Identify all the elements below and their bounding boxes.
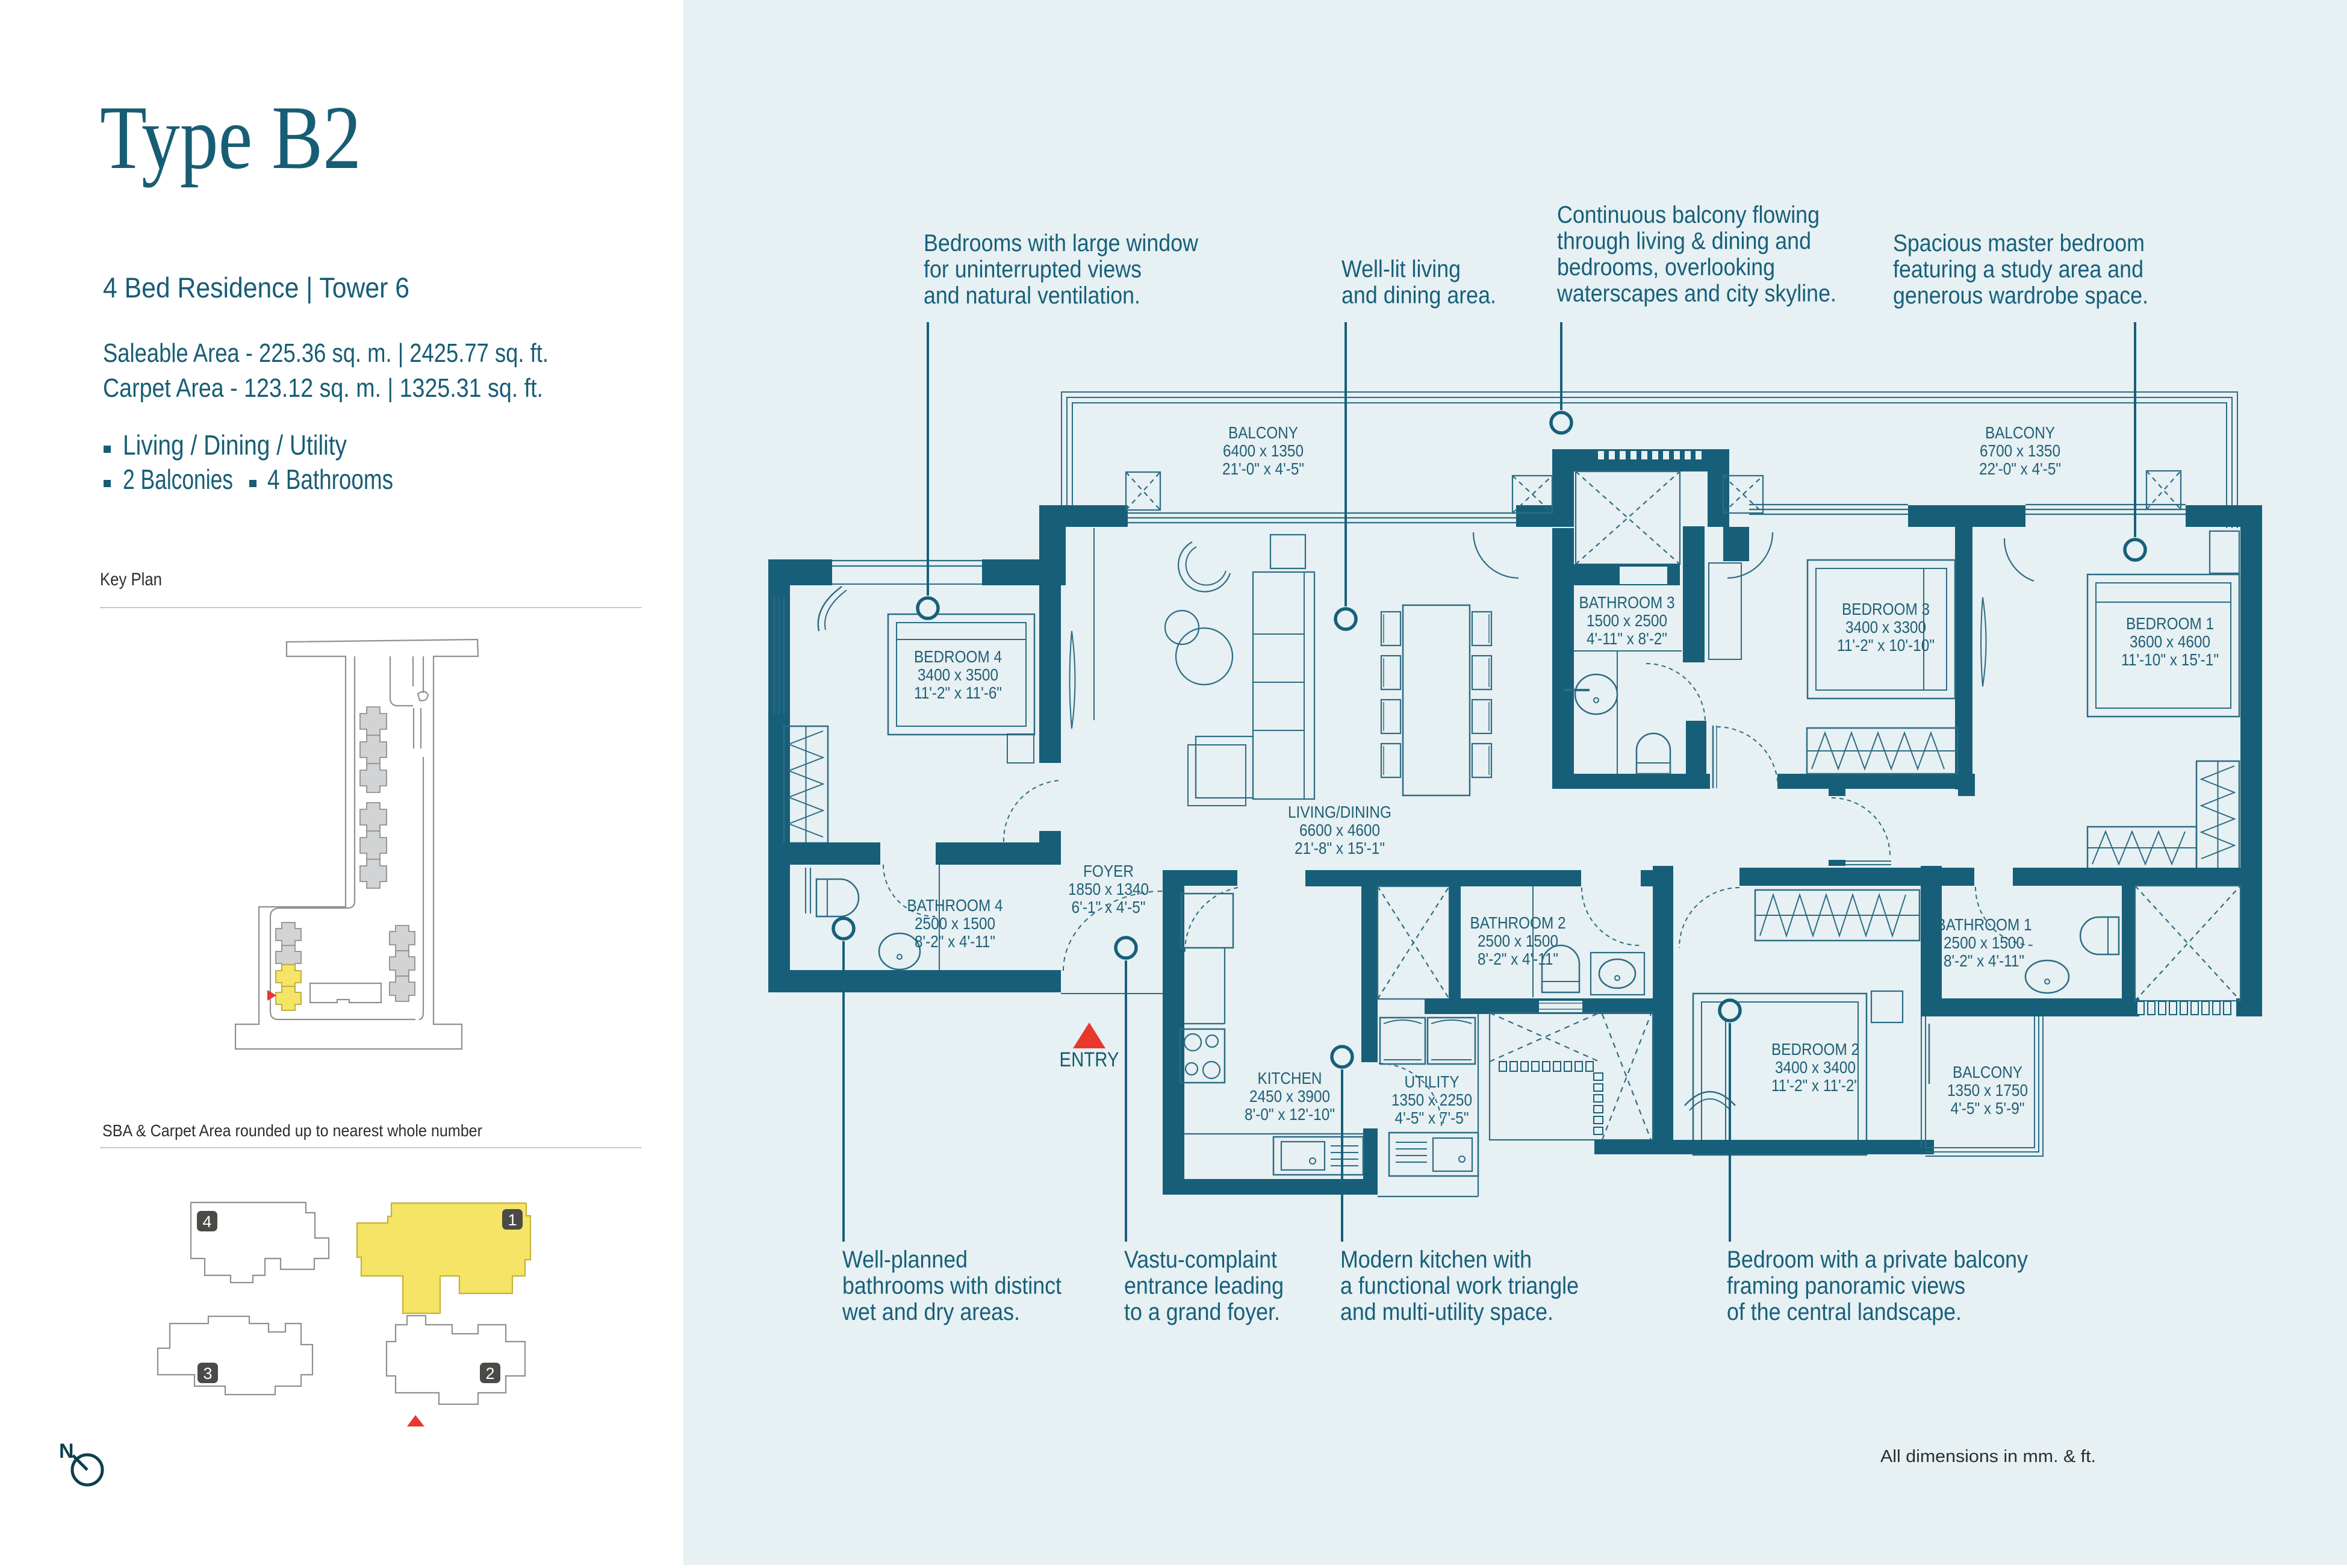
svg-text:21'-8" x 15'-1": 21'-8" x 15'-1" xyxy=(1295,839,1385,857)
svg-text:wet and dry areas.: wet and dry areas. xyxy=(842,1299,1020,1325)
svg-text:4 Bathrooms: 4 Bathrooms xyxy=(267,464,393,495)
svg-text:for uninterrupted views: for uninterrupted views xyxy=(924,257,1142,283)
svg-text:BALCONY: BALCONY xyxy=(1228,423,1298,442)
svg-text:Bedroom with a private balcony: Bedroom with a private balcony xyxy=(1727,1246,2028,1273)
svg-text:Carpet Area - 123.12 sq. m: Carpet Area - 123.12 sq. m. | 1325.31 sq… xyxy=(103,373,543,403)
svg-text:BEDROOM 1: BEDROOM 1 xyxy=(2126,614,2214,633)
svg-text:and natural ventilation.: and natural ventilation. xyxy=(924,282,1140,309)
svg-text:and multi-utility space.: and multi-utility space. xyxy=(1340,1299,1553,1325)
svg-text:2: 2 xyxy=(485,1364,494,1383)
svg-text:11'-10" x 15'-1": 11'-10" x 15'-1" xyxy=(2121,650,2219,669)
svg-text:11'-2" x 11'-6": 11'-2" x 11'-6" xyxy=(914,683,1002,702)
svg-text:BATHROOM 2: BATHROOM 2 xyxy=(1470,913,1566,932)
svg-text:3: 3 xyxy=(203,1364,212,1383)
svg-text:Well-planned: Well-planned xyxy=(842,1246,968,1273)
svg-text:1850 x 1340: 1850 x 1340 xyxy=(1068,880,1149,898)
svg-text:2500 x 1500: 2500 x 1500 xyxy=(1478,932,1558,950)
svg-text:1350 x 1750: 1350 x 1750 xyxy=(1947,1081,2028,1100)
svg-text:8'-2" x 4'-11": 8'-2" x 4'-11" xyxy=(915,932,995,951)
svg-text:Bedrooms with large window: Bedrooms with large window xyxy=(924,230,1198,257)
svg-text:KITCHEN: KITCHEN xyxy=(1258,1069,1322,1087)
svg-text:BATHROOM 1: BATHROOM 1 xyxy=(1936,915,2032,934)
svg-text:Key Plan: Key Plan xyxy=(100,570,162,590)
svg-text:waterscapes and city skyline.: waterscapes and city skyline. xyxy=(1556,281,1836,307)
svg-text:Continuous balcony flowing: Continuous balcony flowing xyxy=(1557,202,1820,228)
svg-text:3400 x 3400: 3400 x 3400 xyxy=(1775,1058,1856,1077)
svg-text:a functional work triangle: a functional work triangle xyxy=(1340,1273,1579,1299)
svg-text:BALCONY: BALCONY xyxy=(1953,1063,2022,1081)
svg-text:bedrooms, overlooking: bedrooms, overlooking xyxy=(1557,254,1775,281)
svg-text:22'-0" x 4'-5": 22'-0" x 4'-5" xyxy=(1979,459,2061,478)
svg-text:2 Balconies: 2 Balconies xyxy=(123,464,233,495)
svg-text:4'-5" x 7'-5": 4'-5" x 7'-5" xyxy=(1395,1109,1469,1127)
svg-text:Well-lit living: Well-lit living xyxy=(1341,256,1461,282)
svg-text:All dimensions in mm. & ft.: All dimensions in mm. & ft. xyxy=(1880,1447,2096,1466)
svg-text:4: 4 xyxy=(202,1213,211,1231)
svg-text:BATHROOM 4: BATHROOM 4 xyxy=(907,896,1003,915)
svg-text:Modern kitchen with: Modern kitchen with xyxy=(1340,1246,1532,1273)
svg-text:3400 x 3500: 3400 x 3500 xyxy=(918,665,998,684)
svg-text:21'-0" x 4'-5": 21'-0" x 4'-5" xyxy=(1222,459,1304,478)
svg-text:framing panoramic views: framing panoramic views xyxy=(1727,1273,1965,1299)
svg-text:BEDROOM 3: BEDROOM 3 xyxy=(1842,600,1930,618)
svg-text:8'-2" x 4'-11": 8'-2" x 4'-11" xyxy=(1944,951,2024,970)
svg-text:2500 x 1500: 2500 x 1500 xyxy=(915,914,995,933)
svg-text:BALCONY: BALCONY xyxy=(1985,423,2055,442)
svg-text:3400 x 3300: 3400 x 3300 xyxy=(1845,618,1926,636)
svg-text:ENTRY: ENTRY xyxy=(1060,1048,1119,1071)
svg-text:LIVING/DINING: LIVING/DINING xyxy=(1288,803,1391,821)
svg-text:Type B2: Type B2 xyxy=(100,87,361,188)
svg-text:6700 x 1350: 6700 x 1350 xyxy=(1980,441,2060,460)
svg-text:6400 x 1350: 6400 x 1350 xyxy=(1223,441,1304,460)
svg-text:generous wardrobe space.: generous wardrobe space. xyxy=(1893,282,2148,309)
svg-text:through living & dining and: through living & dining and xyxy=(1557,228,1811,255)
svg-text:4 Bed Residence | Tower 6: 4 Bed Residence | Tower 6 xyxy=(103,272,409,303)
svg-text:BATHROOM 3: BATHROOM 3 xyxy=(1579,593,1675,612)
svg-text:4'-11" x 8'-2": 4'-11" x 8'-2" xyxy=(1587,629,1667,648)
svg-text:6'-1" x 4'-5": 6'-1" x 4'-5" xyxy=(1072,898,1146,916)
svg-text:to a grand foyer.: to a grand foyer. xyxy=(1124,1299,1280,1325)
svg-text:and dining area.: and dining area. xyxy=(1341,282,1496,309)
svg-text:bathrooms with distinct: bathrooms with distinct xyxy=(842,1273,1062,1299)
svg-text:UTILITY: UTILITY xyxy=(1405,1072,1459,1091)
svg-text:N: N xyxy=(59,1440,74,1463)
svg-text:3600 x 4600: 3600 x 4600 xyxy=(2130,632,2210,651)
svg-text:2450 x 3900: 2450 x 3900 xyxy=(1249,1087,1330,1106)
svg-text:featuring a study area and: featuring a study area and xyxy=(1893,257,2143,283)
svg-text:Spacious master bedroom: Spacious master bedroom xyxy=(1893,230,2145,257)
svg-text:2500 x 1500: 2500 x 1500 xyxy=(1944,933,2024,952)
svg-text:Saleable Area - 225.36 sq. m.: Saleable Area - 225.36 sq. m. | 2425.77 … xyxy=(103,338,549,368)
svg-text:entrance leading: entrance leading xyxy=(1124,1273,1284,1299)
svg-text:Living / Dining / Utility: Living / Dining / Utility xyxy=(123,429,347,461)
svg-text:8'-0" x 12'-10": 8'-0" x 12'-10" xyxy=(1245,1105,1335,1124)
svg-text:1500 x 2500: 1500 x 2500 xyxy=(1587,611,1667,630)
svg-text:of the central landscape.: of the central landscape. xyxy=(1727,1299,1962,1325)
svg-text:4'-5" x 5'-9": 4'-5" x 5'-9" xyxy=(1951,1099,2025,1118)
svg-text:BEDROOM 2: BEDROOM 2 xyxy=(1771,1040,1859,1059)
svg-text:1: 1 xyxy=(508,1211,517,1229)
svg-text:FOYER: FOYER xyxy=(1083,862,1134,880)
svg-text:Vastu-complaint: Vastu-complaint xyxy=(1124,1246,1277,1273)
svg-text:11'-2" x 11'-2": 11'-2" x 11'-2" xyxy=(1771,1076,1859,1095)
svg-text:SBA & Carpet Area rounded up t: SBA & Carpet Area rounded up to nearest … xyxy=(102,1121,482,1140)
svg-text:BEDROOM 4: BEDROOM 4 xyxy=(914,647,1002,666)
svg-text:11'-2" x 10'-10": 11'-2" x 10'-10" xyxy=(1837,636,1935,655)
svg-text:6600 x 4600: 6600 x 4600 xyxy=(1299,821,1380,839)
